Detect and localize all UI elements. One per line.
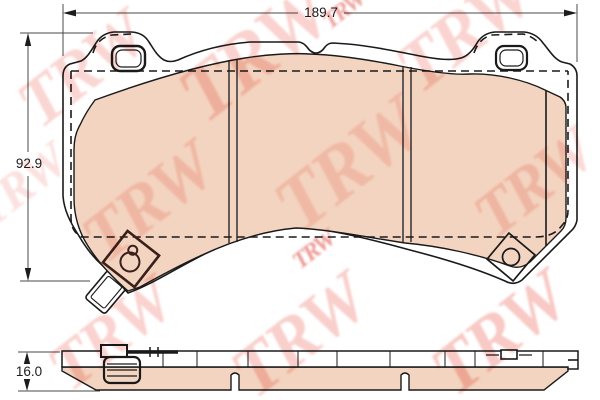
pad-front-view <box>63 32 577 314</box>
mounting-hole-right <box>496 46 527 70</box>
trw-logo-watermark: TRW <box>0 129 81 239</box>
width-label: 189.7 <box>304 5 338 20</box>
brake-pad-technical-drawing: 189.7 92.9 16.0 <box>0 0 600 400</box>
friction-material <box>74 54 566 291</box>
mounting-hole-left <box>112 46 145 71</box>
height-label: 92.9 <box>16 156 42 171</box>
thickness-label: 16.0 <box>16 364 42 379</box>
pad-edge-view <box>62 345 578 390</box>
edge-friction <box>62 367 568 390</box>
